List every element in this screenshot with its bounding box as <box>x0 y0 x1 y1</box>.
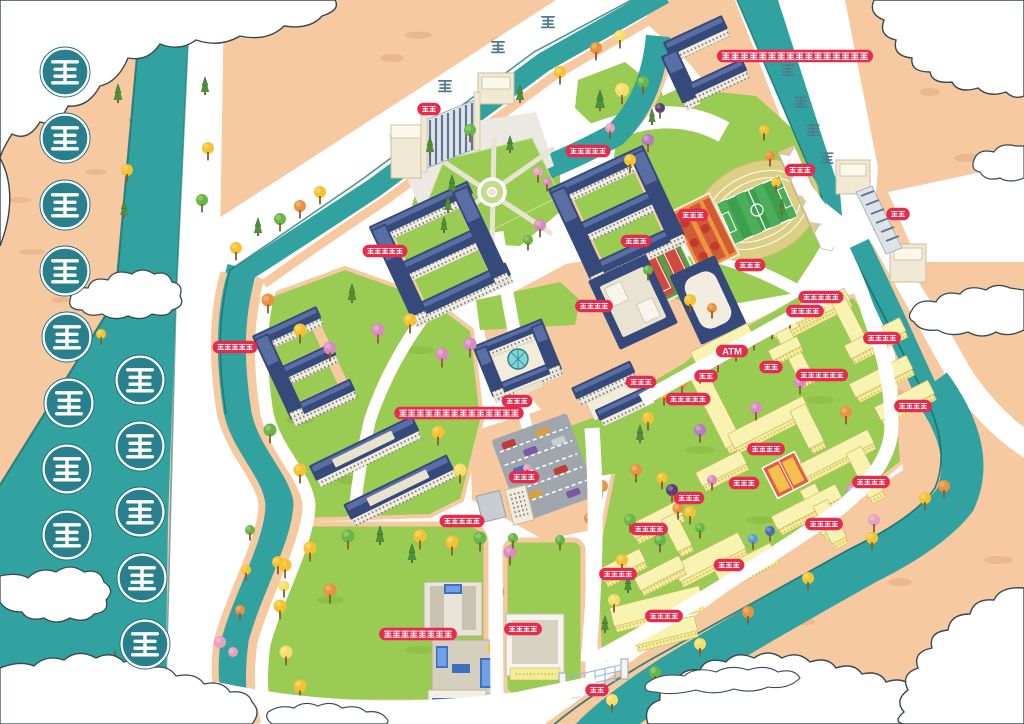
svg-text:ATM: ATM <box>722 347 742 358</box>
